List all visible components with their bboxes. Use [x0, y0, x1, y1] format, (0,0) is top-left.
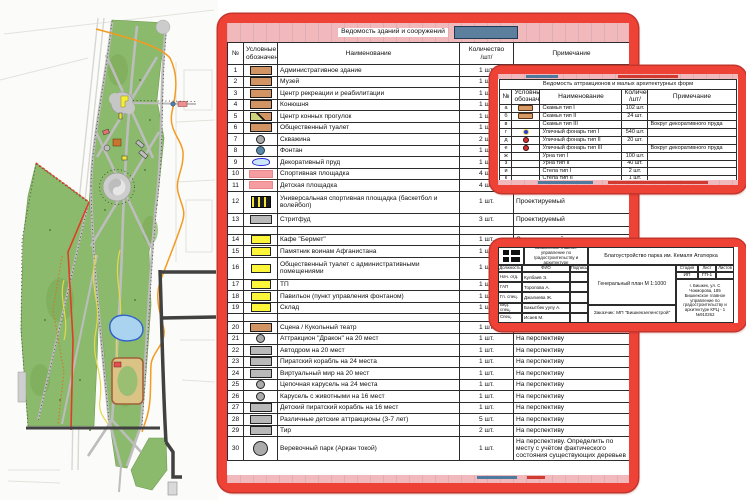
cell-name: Виртуальный мир на 20 мест: [278, 368, 460, 380]
table-row: 22 Автодром на 20 мест 1 шт. На перспект…: [228, 345, 630, 357]
cell-symbol: [244, 134, 278, 146]
col-qty: Количество/шт/: [460, 43, 514, 65]
cell-symbol: [512, 137, 540, 145]
cell-symbol: [244, 76, 278, 88]
riding-field: [112, 358, 143, 404]
cell-num: 30: [228, 437, 244, 461]
cell-num: 12: [228, 191, 244, 213]
cell-qty: 1 шт.: [460, 402, 514, 414]
table-row: 27 Детский пиратский корабль на 16 мест …: [228, 402, 630, 414]
org-logo-cell: [498, 247, 524, 265]
cell-qty: 5 шт.: [460, 414, 514, 426]
cell-num: б: [500, 113, 512, 121]
legend-symbol: [250, 346, 272, 355]
cell-note: [648, 105, 736, 113]
cell-num: 27: [228, 402, 244, 414]
legend-symbol: [250, 123, 272, 132]
cell-note: На перспективу: [514, 356, 630, 368]
cell-symbol: [244, 122, 278, 134]
legend-symbol: [256, 392, 265, 401]
legend-symbol: [249, 181, 273, 189]
cell-qty: 1 шт.: [460, 345, 514, 357]
cell-symbol: [244, 226, 278, 234]
stage-value: ИП: [676, 272, 698, 279]
cell-num: 16: [228, 257, 244, 279]
table-row: 21 Аттракцион "Дракон" на 20 мест 1 шт. …: [228, 333, 630, 345]
person-name: Бакытбек уулу А.: [522, 303, 570, 313]
cell-note: На перспективу: [514, 333, 630, 345]
cell-name: Скважина: [278, 134, 460, 146]
person-signature: [570, 313, 588, 323]
person-role: Нач. отд.: [498, 272, 522, 282]
cell-symbol: [244, 99, 278, 111]
cell-num: 9: [228, 157, 244, 169]
cell-name: Кафе "Бермет": [278, 234, 460, 246]
cell-name: Декоративный пруд: [278, 157, 460, 169]
cell-qty: 102 шт.: [622, 105, 648, 113]
cell-symbol: [244, 302, 278, 314]
cell-num: д: [500, 137, 512, 145]
cell-symbol: [244, 65, 278, 77]
cell-note: [648, 128, 736, 136]
person-name: Исаев М.: [522, 313, 570, 323]
cell-name: [278, 314, 460, 322]
cell-name: Карусель с животными на 16 мест: [278, 391, 460, 403]
cell-symbol: [512, 105, 540, 113]
cell-note: На перспективу: [514, 345, 630, 357]
cell-qty: 1 шт.: [460, 391, 514, 403]
cell-num: 11: [228, 180, 244, 192]
legend-symbol: [250, 215, 272, 224]
org-logo: [503, 250, 520, 262]
cell-symbol: [512, 168, 540, 175]
cell-symbol: [244, 111, 278, 123]
cell-num: а: [500, 105, 512, 113]
cell-name: Музей: [278, 76, 460, 88]
cell-num: 29: [228, 425, 244, 437]
cell-num: 24: [228, 368, 244, 380]
cell-note: [648, 137, 736, 145]
legend-symbol: [523, 129, 529, 135]
table-row: 12 Универсальная спортивная площадка (ба…: [228, 191, 630, 213]
person-signature: [570, 272, 588, 282]
cell-num: 8: [228, 145, 244, 157]
col-sheets: Листов: [716, 265, 734, 272]
legend-symbol: [523, 145, 529, 151]
cell-name: Автодром на 20 мест: [278, 345, 460, 357]
legend-symbol: [250, 426, 272, 435]
attractions-table: Ведомость аттракционов и малых архитекту…: [499, 79, 736, 183]
cell-name: Урна тип II: [540, 160, 622, 167]
attractions-title-row: Ведомость аттракционов и малых архитекту…: [500, 80, 736, 90]
cell-name: Уличный фонарь тип II: [540, 137, 622, 145]
cell-note: На перспективу: [514, 402, 630, 414]
cell-symbol: [244, 322, 278, 334]
cell-num: [228, 314, 244, 322]
cell-num: 20: [228, 322, 244, 334]
cell-qty: 1 шт.: [460, 191, 514, 213]
cell-num: 28: [228, 414, 244, 426]
cell-qty: 40 шт.: [622, 160, 648, 167]
cell-symbol: [244, 345, 278, 357]
legend-symbol: [250, 112, 272, 121]
legend-symbol: [250, 89, 272, 98]
cell-qty: 1 шт.: [460, 368, 514, 380]
cell-symbol: [244, 437, 278, 461]
cell-name: Общественный туалет с административными …: [278, 257, 460, 279]
cell-qty: 1 шт.: [460, 356, 514, 368]
col-symbol: Условные обозначения: [512, 90, 540, 105]
cell-note: Проектируемый: [514, 213, 630, 226]
person-role: ГАП: [498, 282, 522, 292]
col-stage: Стадия: [676, 265, 698, 272]
legend-symbol: [256, 135, 265, 144]
cell-name: Веревочный парк (Аркан токой): [278, 437, 460, 461]
attractions-header-row: № Условные обозначения Наименование Коли…: [500, 90, 736, 105]
cell-num: 17: [228, 279, 244, 291]
cell-num: з: [500, 160, 512, 167]
cell-name: Стритфуд: [278, 213, 460, 226]
person-signature: [570, 282, 588, 292]
person-role: Спец.: [498, 313, 522, 323]
col-role: Должность: [498, 265, 522, 272]
cell-symbol: [244, 257, 278, 279]
table-row: 30 Веревочный парк (Аркан токой) 1 шт. Н…: [228, 437, 630, 461]
table-row: в Скамья тип III Вокруг декоративного пр…: [500, 121, 736, 128]
cell-note: На перспективу: [514, 379, 630, 391]
cell-symbol: [244, 314, 278, 322]
col-name: Наименование: [278, 43, 460, 65]
cell-symbol: [244, 368, 278, 380]
cell-note: На перспективу: [514, 414, 630, 426]
stamp-panel: Бишкекское главное управление по градост…: [490, 239, 746, 331]
sheets-value: [716, 272, 734, 279]
cell-symbol: [512, 121, 540, 128]
cell-num: 2: [228, 76, 244, 88]
col-fio: ФИО: [522, 265, 570, 272]
cell-name: Урна тип I: [540, 153, 622, 160]
cell-name: Детская площадка: [278, 180, 460, 192]
legend-symbol: [252, 158, 270, 166]
cell-num: 14: [228, 234, 244, 246]
cell-num: 1: [228, 65, 244, 77]
sheet-footer-strip: [227, 475, 629, 483]
table-row: 25 Цепочная карусель на 24 места 1 шт. Н…: [228, 379, 630, 391]
bus-stop: [168, 482, 177, 495]
cell-symbol: [244, 246, 278, 258]
cell-symbol: [512, 113, 540, 121]
legend-symbol: [251, 292, 271, 301]
legend-symbol: [250, 403, 272, 412]
legend-symbol: [250, 415, 272, 424]
sheet-strip-top: [498, 74, 738, 79]
cell-name: Универсальная спортивная площадка (баске…: [278, 191, 460, 213]
cell-symbol: [244, 279, 278, 291]
cell-name: Центр конных прогулок: [278, 111, 460, 123]
table-row: 13 Стритфуд 3 шт. Проектируемый: [228, 213, 630, 226]
col-note: Примечание: [648, 90, 736, 105]
person-role: Вед. спец.: [498, 303, 522, 313]
cell-qty: 20 шт.: [622, 137, 648, 145]
table-row: ж Урна тип I 100 шт.: [500, 153, 736, 160]
org-name: Бишкекское главное управление по градост…: [524, 247, 588, 265]
cell-symbol: [512, 128, 540, 136]
col-qty: Количество/шт/: [622, 90, 648, 105]
cell-name: Памятник воинам Афганистана: [278, 246, 460, 258]
cell-name: Павильон (пункт управления фонтаном): [278, 291, 460, 303]
cell-note: Вокруг декоративного пруда: [648, 145, 736, 153]
legend-symbol: [251, 247, 271, 256]
cell-symbol: [244, 425, 278, 437]
cell-symbol: [244, 145, 278, 157]
cell-qty: 1 шт.: [460, 437, 514, 461]
cell-num: ж: [500, 153, 512, 160]
cell-qty: 24 шт.: [622, 113, 648, 121]
cell-symbol: [244, 402, 278, 414]
cell-note: На перспективу. Определить по месту с уч…: [514, 437, 630, 461]
cell-name: Тир: [278, 425, 460, 437]
cell-symbol: [244, 391, 278, 403]
cell-name: Общественный туалет: [278, 122, 460, 134]
cell-note: [648, 160, 736, 167]
table-row: е Уличный фонарь тип III Вокруг декорати…: [500, 145, 736, 153]
cell-qty: 2 шт.: [460, 425, 514, 437]
cell-num: [228, 226, 244, 234]
cell-note: На перспективу: [514, 425, 630, 437]
title-block: Бишкекское главное управление по градост…: [498, 247, 734, 323]
cell-name: Уличный фонарь тип III: [540, 145, 622, 153]
cell-symbol: [244, 356, 278, 368]
cell-num: в: [500, 121, 512, 128]
person-signature: [570, 292, 588, 302]
legend-symbol: [523, 137, 529, 143]
table-row: 23 Пиратский корабль на 24 места 1 шт. Н…: [228, 356, 630, 368]
cell-note: [648, 113, 736, 121]
cell-qty: 540 шт.: [622, 128, 648, 136]
cell-qty: [622, 121, 648, 128]
legend-symbol: [251, 235, 271, 244]
cell-qty: [460, 226, 514, 234]
legend-symbol: [256, 146, 265, 155]
cell-num: 4: [228, 99, 244, 111]
table-row: [228, 226, 630, 234]
cell-symbol: [244, 213, 278, 226]
cell-name: Сцена / Кукольный театр: [278, 322, 460, 334]
cell-qty: 1 шт.: [460, 379, 514, 391]
cell-name: Центр рекреации и реабилитации: [278, 88, 460, 100]
cell-num: 13: [228, 213, 244, 226]
cell-name: Скамья тип I: [540, 105, 622, 113]
cell-note: [648, 153, 736, 160]
col-num: №: [228, 43, 244, 65]
cell-qty: [622, 145, 648, 153]
legend-symbol: [249, 170, 273, 178]
legend-symbol: [250, 369, 272, 378]
cell-symbol: [244, 379, 278, 391]
cell-symbol: [512, 145, 540, 153]
table-row: б Скамья тип II 24 шт.: [500, 113, 736, 121]
table-row: 24 Виртуальный мир на 20 мест 1 шт. На п…: [228, 368, 630, 380]
cell-qty: 2 шт.: [622, 168, 648, 175]
legend-symbol: [256, 334, 265, 343]
cell-num: и: [500, 168, 512, 175]
cell-name: Уличный фонарь тип I: [540, 128, 622, 136]
project-title: Благоустройство парка им. Кемаля Ататюрк…: [588, 247, 734, 265]
legend-symbol: [251, 303, 271, 312]
table-row: 29 Тир 2 шт. На перспективу: [228, 425, 630, 437]
cell-num: 19: [228, 302, 244, 314]
cell-name: Цепочная карусель на 24 места: [278, 379, 460, 391]
cell-symbol: [244, 157, 278, 169]
park-map: [0, 0, 218, 500]
cell-num: г: [500, 128, 512, 136]
cell-num: 21: [228, 333, 244, 345]
cell-name: [278, 226, 460, 234]
person-name: Кулбаев Э.: [522, 272, 570, 282]
legend-symbol: [251, 196, 271, 208]
person-name: Джалиева Ж.: [522, 292, 570, 302]
cell-num: 23: [228, 356, 244, 368]
buildings-header-row: № Условные обозначения Наименование Коли…: [228, 43, 630, 65]
legend-symbol: [251, 264, 271, 273]
col-sheet: Лист: [698, 265, 716, 272]
person-role: Гл. спец.: [498, 292, 522, 302]
col-symbol: Условные обозначения: [244, 43, 278, 65]
cell-num: 5: [228, 111, 244, 123]
cell-name: Фонтан: [278, 145, 460, 157]
table-row: а Скамья тип I 102 шт.: [500, 105, 736, 113]
cell-symbol: [244, 180, 278, 192]
cell-name: Аттракцион "Дракон" на 20 мест: [278, 333, 460, 345]
table-row: г Уличный фонарь тип I 540 шт.: [500, 128, 736, 136]
legend-symbol: [253, 441, 268, 456]
cell-name: Скамья тип III: [540, 121, 622, 128]
sheet-value: ГП-1: [698, 272, 716, 279]
attractions-panel: Ведомость аттракционов и малых архитекту…: [490, 66, 746, 193]
cell-num: е: [500, 145, 512, 153]
cell-num: 10: [228, 168, 244, 180]
cell-qty: 100 шт.: [622, 153, 648, 160]
sheet-fragment-blue: [454, 26, 518, 39]
sheet-strip-bottom: [498, 180, 738, 185]
cell-note: На перспективу: [514, 391, 630, 403]
drawing-sheet: { "palette": { "annotation_red": "#ee423…: [0, 0, 746, 500]
cell-symbol: [512, 160, 540, 167]
person-signature: [570, 303, 588, 313]
park-map-svg: [0, 0, 218, 500]
legend-symbol: [250, 100, 272, 109]
cell-name: ТП: [278, 279, 460, 291]
legend-symbol: [250, 357, 272, 366]
col-sign: Подпись: [570, 265, 588, 272]
cell-symbol: [244, 234, 278, 246]
col-num: №: [500, 90, 512, 105]
attractions-table-title: Ведомость аттракционов и малых архитекту…: [500, 80, 736, 90]
cell-symbol: [244, 291, 278, 303]
table-row: 28 Различные детские аттракционы (3-7 ле…: [228, 414, 630, 426]
legend-symbol: [250, 66, 272, 75]
cell-name: Конюшня: [278, 99, 460, 111]
legend-symbol: [250, 77, 272, 86]
sheet-header-strip: Ведомость зданий и сооружений: [227, 23, 629, 42]
cell-name: Административное здание: [278, 65, 460, 77]
cell-symbol: [244, 191, 278, 213]
org-address: г. Бишкек, ул. С Чокморова, 185 Бишкекск…: [676, 279, 734, 323]
cell-qty: 3 шт.: [460, 213, 514, 226]
cell-symbol: [244, 333, 278, 345]
cell-note: Проектируемый: [514, 191, 630, 213]
cell-num: 22: [228, 345, 244, 357]
cell-symbol: [244, 168, 278, 180]
cell-name: Склад: [278, 302, 460, 314]
plaza-central: [103, 173, 131, 201]
legend-symbol: [518, 105, 533, 111]
cell-symbol: [244, 414, 278, 426]
cell-num: 26: [228, 391, 244, 403]
cell-qty: 1 шт.: [460, 333, 514, 345]
cell-num: 7: [228, 134, 244, 146]
drawing-name: Генеральный план М 1:1000: [588, 265, 676, 305]
cell-num: 15: [228, 246, 244, 258]
cell-num: 18: [228, 291, 244, 303]
buildings-table-title: Ведомость зданий и сооружений: [338, 28, 448, 36]
cell-symbol: [512, 153, 540, 160]
table-row: д Уличный фонарь тип II 20 шт.: [500, 137, 736, 145]
cell-name: Стела тип I: [540, 168, 622, 175]
legend-symbol: [251, 280, 271, 289]
cell-name: Спортивная площадка: [278, 168, 460, 180]
col-note: Примечание: [514, 43, 630, 65]
client: Заказчик: МП "Бишкекзеленстрой": [588, 305, 676, 323]
legend-symbol: [518, 113, 533, 119]
cell-name: Скамья тип II: [540, 113, 622, 121]
cell-name: Детский пиратский корабль на 16 мест: [278, 402, 460, 414]
cell-note: Вокруг декоративного пруда: [648, 121, 736, 128]
table-row: з Урна тип II 40 шт.: [500, 160, 736, 167]
cell-note: [514, 226, 630, 234]
cell-note: [648, 168, 736, 175]
cell-name: Различные детские аттракционы (3-7 лет): [278, 414, 460, 426]
cell-note: На перспективу: [514, 368, 630, 380]
cell-num: 25: [228, 379, 244, 391]
cell-name: Пиратский корабль на 24 места: [278, 356, 460, 368]
legend-symbol: [250, 323, 272, 332]
cell-num: 3: [228, 88, 244, 100]
table-row: 26 Карусель с животными на 16 мест 1 шт.…: [228, 391, 630, 403]
cell-symbol: [244, 88, 278, 100]
person-name: Торопова А.: [522, 282, 570, 292]
col-name: Наименование: [540, 90, 622, 105]
table-row: и Стела тип I 2 шт.: [500, 168, 736, 175]
cell-num: 6: [228, 122, 244, 134]
legend-symbol: [256, 380, 265, 389]
